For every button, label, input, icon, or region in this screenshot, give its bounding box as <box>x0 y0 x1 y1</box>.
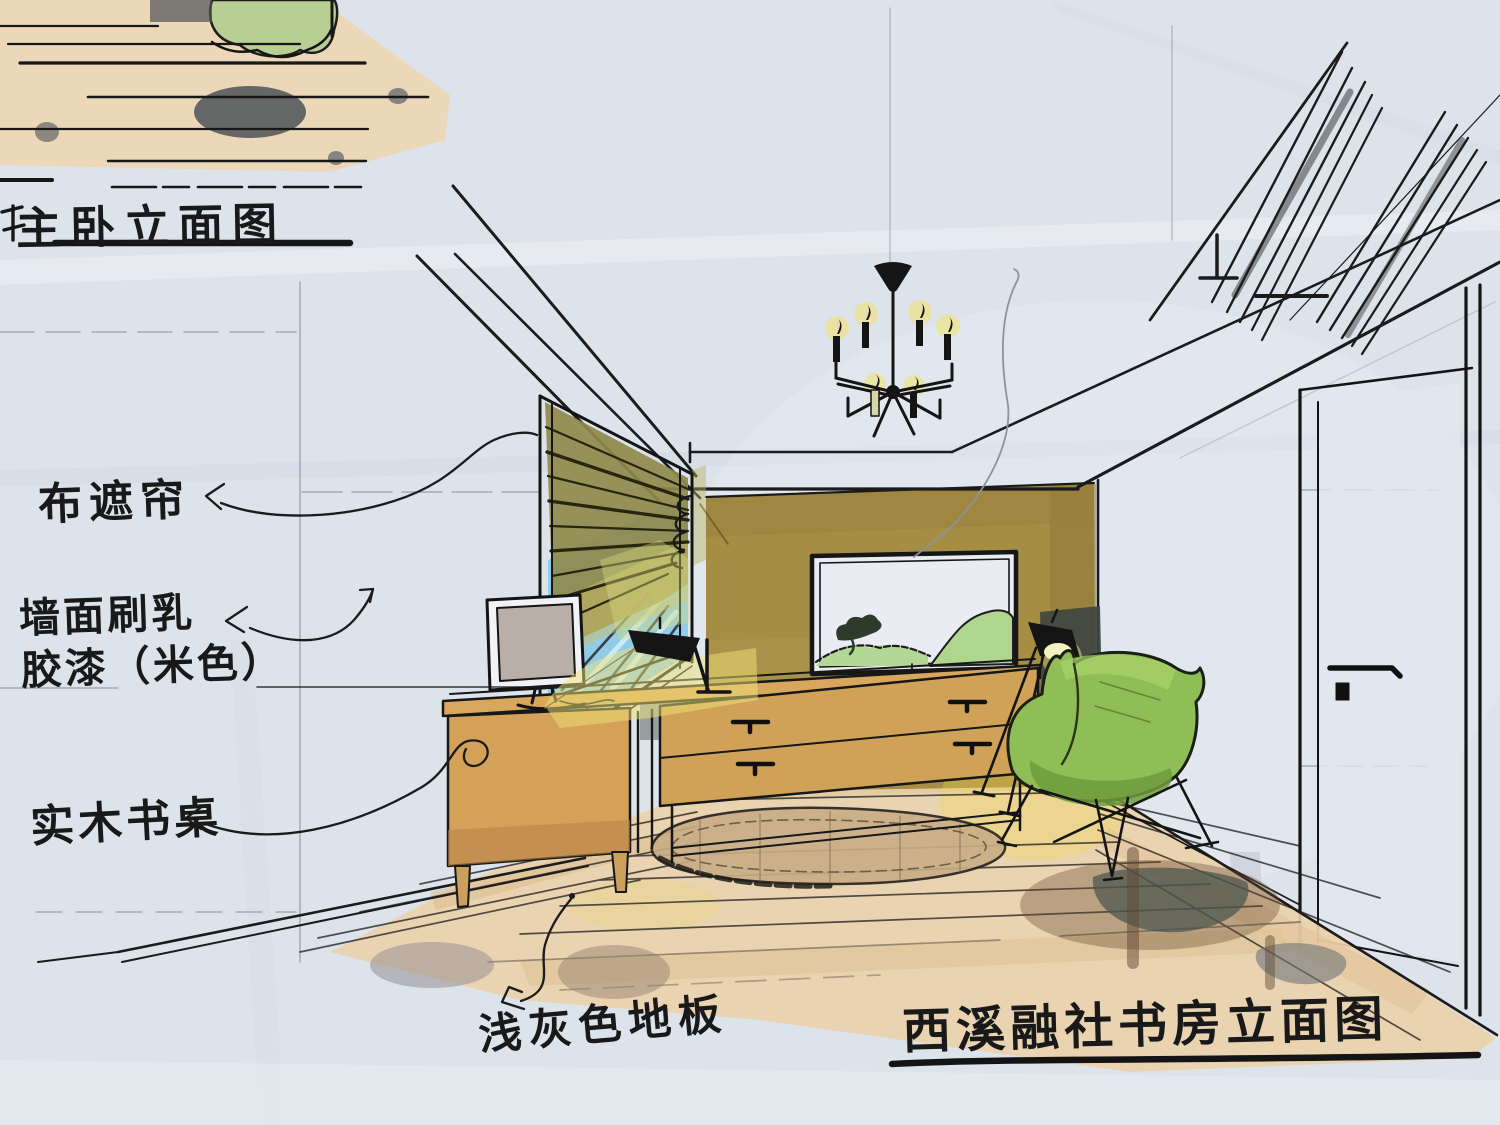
annotation-desk: 实木书桌 <box>28 781 223 855</box>
annotation-wall-paint-line2: 胶漆（米色） <box>20 636 286 698</box>
sketch-sheet: 主卧立面图 布遮帘 墙面刷乳 胶漆（米色） 实木书桌 浅灰色地板 西溪融社书房立… <box>0 0 1500 1125</box>
fragment-title: 主卧立面图 <box>15 188 286 258</box>
main-title: 西溪融社书房立面图 <box>901 980 1389 1064</box>
annotation-curtain: 布遮帘 <box>37 463 192 532</box>
annotation-wall-paint-line1: 墙面刷乳 <box>18 583 284 645</box>
room-sketch <box>0 0 1500 1125</box>
skylight-hatching <box>1150 43 1500 354</box>
annotation-wall-paint: 墙面刷乳 胶漆（米色） <box>18 583 286 697</box>
